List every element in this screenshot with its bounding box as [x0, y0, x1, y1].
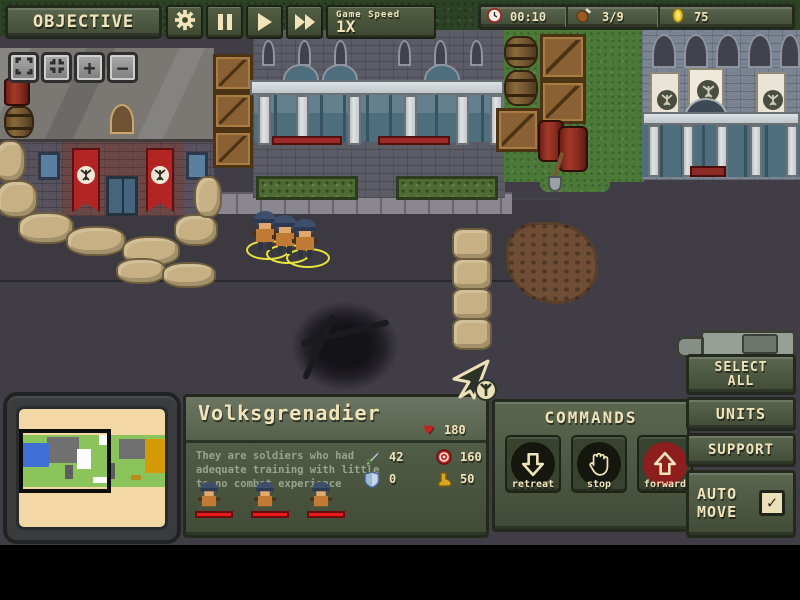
speed-value: 50: [460, 472, 474, 486]
sandbag: [452, 318, 492, 350]
armor-value: 0: [389, 472, 396, 486]
truck-window: [742, 334, 778, 354]
play-button[interactable]: [246, 5, 283, 39]
hp-value: 180: [444, 423, 466, 437]
wood-crate: [540, 34, 586, 80]
select-all-button[interactable]: SELECT ALL: [686, 354, 796, 395]
red-doormat: [690, 166, 726, 177]
plus-icon: +: [83, 56, 95, 80]
select-all-line2: ALL: [728, 375, 754, 389]
settings-button[interactable]: [166, 5, 203, 39]
sandbag: [0, 140, 26, 182]
wood-crate: [496, 108, 540, 152]
support-tab-button[interactable]: SUPPORT: [686, 433, 796, 467]
timer-section: 00:10: [481, 7, 566, 27]
zoom-out-button[interactable]: −: [107, 52, 138, 83]
commands-panel: COMMANDS retreat stop forward: [492, 399, 690, 532]
soldier-unit[interactable]: [292, 218, 318, 260]
upper-window: [780, 34, 800, 68]
range-value: 160: [460, 450, 482, 464]
squad-health-bar: [307, 511, 345, 518]
clock-icon: [487, 8, 502, 27]
squad-member[interactable]: [252, 481, 286, 513]
left-building-window: [38, 152, 60, 180]
coin-value: 75: [694, 10, 708, 24]
dirt-patch: [506, 222, 598, 304]
upper-window: [652, 34, 676, 68]
column: [648, 125, 660, 177]
minimap-objective: [145, 439, 168, 473]
game-speed-panel[interactable]: Game Speed 1X: [326, 5, 436, 39]
attic-window: [110, 104, 134, 134]
shovel-blade-icon: [548, 176, 562, 192]
upper-window: [748, 34, 772, 68]
boot-icon: [436, 471, 453, 492]
select-all-line1: SELECT: [715, 361, 768, 375]
zoom-in-button[interactable]: +: [74, 52, 105, 83]
squad-member[interactable]: [308, 481, 342, 513]
letterbox: [0, 545, 800, 600]
retreat-button[interactable]: retreat: [505, 435, 561, 493]
faction-banner-red: [146, 148, 174, 212]
colonnade-beam: [642, 112, 800, 125]
sandbag: [452, 228, 492, 260]
red-sill: [272, 136, 342, 145]
wood-barrel: [504, 70, 538, 106]
unit-description-line: adequate training with little: [196, 463, 379, 477]
wood-crate: [540, 80, 586, 124]
forward-label: forward: [639, 479, 691, 490]
wood-barrel: [4, 106, 34, 138]
faction-emblem-icon: [77, 166, 95, 184]
stop-button[interactable]: stop: [571, 435, 627, 493]
upper-window: [716, 34, 740, 68]
squad-member[interactable]: [196, 481, 230, 513]
food-value: 3/9: [602, 10, 624, 24]
checkmark-icon: ✓: [767, 493, 777, 513]
units-label: UNITS: [716, 405, 766, 423]
left-building-door: [106, 176, 138, 216]
shield-icon: [364, 471, 380, 492]
column: [258, 95, 271, 145]
upper-window: [262, 40, 275, 66]
drumstick-icon: [576, 7, 592, 27]
hedge-planter: [256, 176, 358, 200]
minus-icon: −: [116, 56, 128, 80]
faction-emblem-icon: [763, 90, 783, 110]
auto-move-checkbox[interactable]: ✓: [759, 490, 785, 516]
pause-icon: [218, 14, 232, 30]
wood-crate: [213, 54, 253, 92]
upper-window: [434, 40, 447, 66]
wood-crate: [213, 130, 253, 168]
retreat-label: retreat: [507, 479, 559, 490]
sandbag: [452, 258, 492, 290]
objective-button[interactable]: OBJECTIVE: [5, 5, 162, 39]
upper-window: [298, 40, 311, 66]
timer-value: 00:10: [510, 10, 546, 24]
resource-bar: 00:10 3/9 75: [478, 4, 795, 30]
food-section: 3/9: [566, 7, 658, 27]
faction-banner-red: [72, 148, 100, 212]
sandbag: [174, 214, 218, 246]
upper-window: [684, 34, 708, 68]
column: [456, 95, 469, 145]
auto-move-label: AUTO MOVE: [697, 485, 737, 521]
units-tab-button[interactable]: UNITS: [686, 397, 796, 431]
squad-health-bar: [195, 511, 233, 518]
wood-crate: [213, 92, 253, 130]
expand-view-button[interactable]: [8, 52, 39, 83]
forward-button[interactable]: forward: [637, 435, 693, 493]
sandbag: [66, 226, 126, 256]
minimap-viewport[interactable]: [19, 429, 111, 493]
minimap-building: [119, 439, 145, 459]
unit-info-panel: Volksgrenadier ♥ 180 They are soldiers w…: [183, 394, 489, 538]
sword-icon: [364, 449, 381, 470]
upper-window: [398, 40, 411, 66]
faction-emblem-icon: [657, 90, 677, 110]
minimap-mark: [131, 475, 141, 480]
commands-title: COMMANDS: [495, 408, 687, 427]
unit-name: Volksgrenadier: [198, 401, 381, 425]
contract-view-button[interactable]: [41, 52, 72, 83]
faction-emblem-icon: [151, 166, 169, 184]
red-sill: [378, 136, 450, 145]
fast-forward-button[interactable]: [286, 5, 323, 39]
attack-value: 42: [389, 450, 403, 464]
squad-health-bar: [251, 511, 289, 518]
game-speed-value: 1X: [336, 20, 355, 34]
awning-beam: [250, 80, 504, 95]
objective-label: OBJECTIVE: [33, 12, 134, 32]
gear-icon: [174, 9, 196, 35]
sandbag: [116, 258, 166, 284]
coin-section: 75: [658, 7, 792, 27]
sandbag: [162, 262, 216, 288]
minimap[interactable]: [16, 406, 168, 530]
minimap-frame: [3, 392, 181, 544]
column: [750, 125, 762, 177]
column: [348, 95, 361, 145]
game-screen: OBJECTIVE Game Speed 1X + − 00:10: [0, 0, 800, 600]
upper-window: [334, 40, 347, 66]
stop-label: stop: [573, 479, 625, 490]
pause-button[interactable]: [206, 5, 243, 39]
unit-description-line: They are soldiers who had: [196, 449, 379, 463]
hedge-planter: [396, 176, 498, 200]
contract-icon: [48, 57, 66, 79]
red-barrel: [558, 126, 588, 172]
expand-icon: [15, 57, 33, 79]
play-icon: [258, 13, 272, 31]
heart-icon: ♥: [424, 421, 433, 439]
unit-info-header: Volksgrenadier ♥ 180: [186, 397, 486, 443]
upper-window: [470, 40, 483, 66]
sandbag: [452, 288, 492, 320]
support-label: SUPPORT: [708, 442, 774, 458]
auto-move-toggle[interactable]: AUTO MOVE ✓: [686, 470, 796, 538]
target-icon: [436, 449, 452, 469]
fast-forward-icon: [295, 14, 315, 30]
coin-icon: [672, 8, 684, 27]
column: [786, 125, 798, 177]
wood-barrel: [504, 36, 538, 68]
sandbag: [194, 176, 222, 218]
